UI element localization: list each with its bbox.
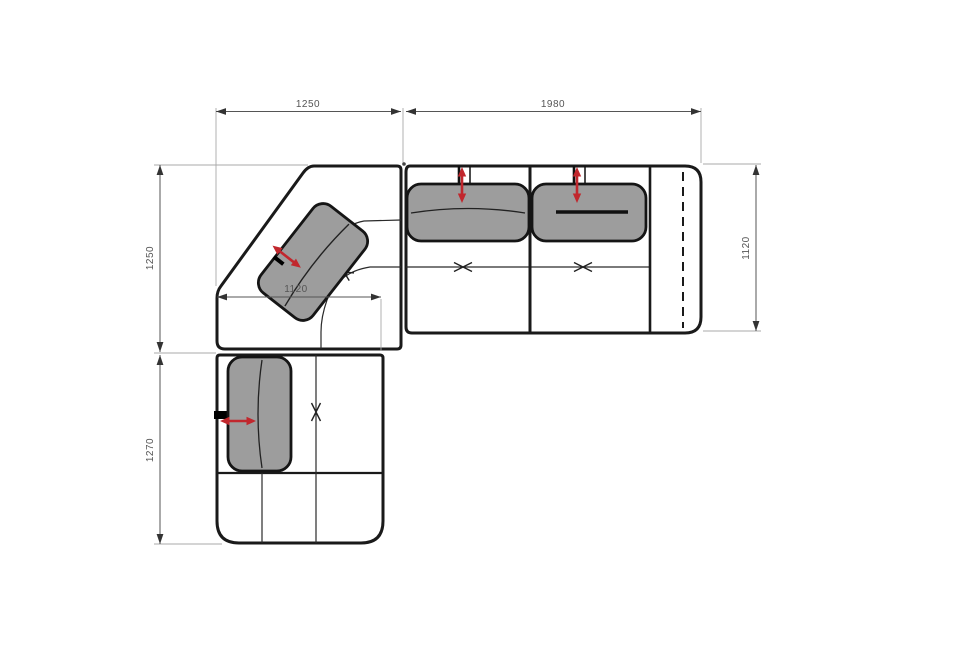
dim-label-left-upper: 1250: [145, 246, 156, 270]
seat-cushion-left: [407, 184, 529, 241]
sofa-plan-svg: 1250 1980 1250 1270 1120 1120: [0, 0, 970, 649]
chaise-section: [214, 355, 383, 543]
chaise-cushion: [228, 357, 291, 471]
dim-label-right: 1120: [741, 236, 752, 260]
corner-reference-dot: [402, 162, 406, 166]
dim-label-corner-inner: 1120: [284, 284, 308, 295]
dim-label-top-left: 1250: [296, 99, 320, 110]
right-sofa-section: [406, 166, 701, 333]
dim-label-top-right: 1980: [541, 99, 565, 110]
dim-label-left-lower: 1270: [145, 438, 156, 462]
